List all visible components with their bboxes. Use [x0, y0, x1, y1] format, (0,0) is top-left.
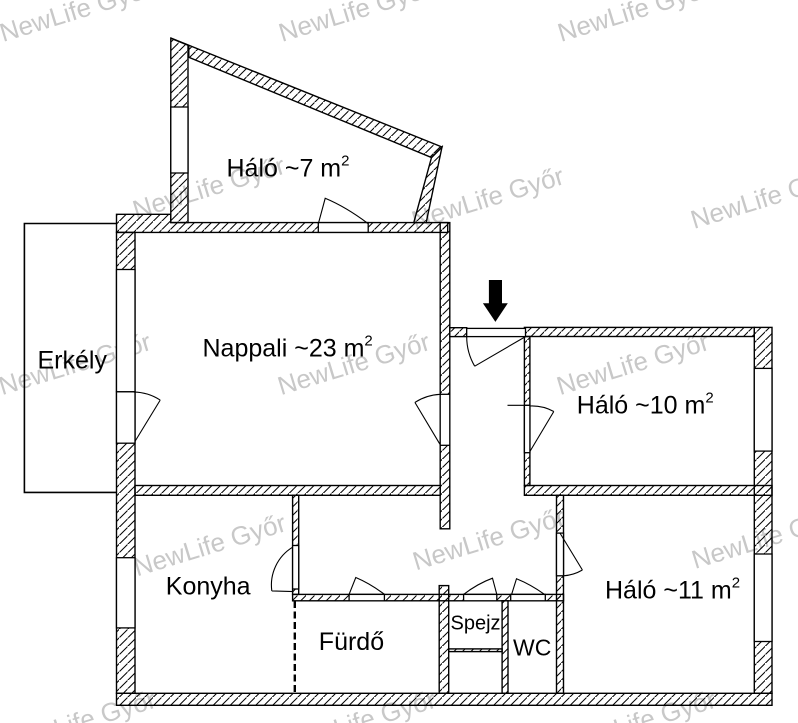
svg-text:Erkély: Erkély	[38, 346, 108, 374]
svg-text:WC: WC	[513, 635, 551, 661]
svg-text:Háló ~10 m2: Háló ~10 m2	[577, 390, 714, 420]
svg-text:Konyha: Konyha	[166, 573, 251, 601]
svg-text:Fürdő: Fürdő	[319, 628, 384, 656]
svg-text:Háló ~11 m2: Háló ~11 m2	[605, 575, 740, 605]
svg-text:Nappali ~23 m2: Nappali ~23 m2	[203, 333, 373, 363]
svg-text:Spejz: Spejz	[451, 613, 501, 635]
svg-text:Háló ~7 m2: Háló ~7 m2	[227, 152, 350, 182]
